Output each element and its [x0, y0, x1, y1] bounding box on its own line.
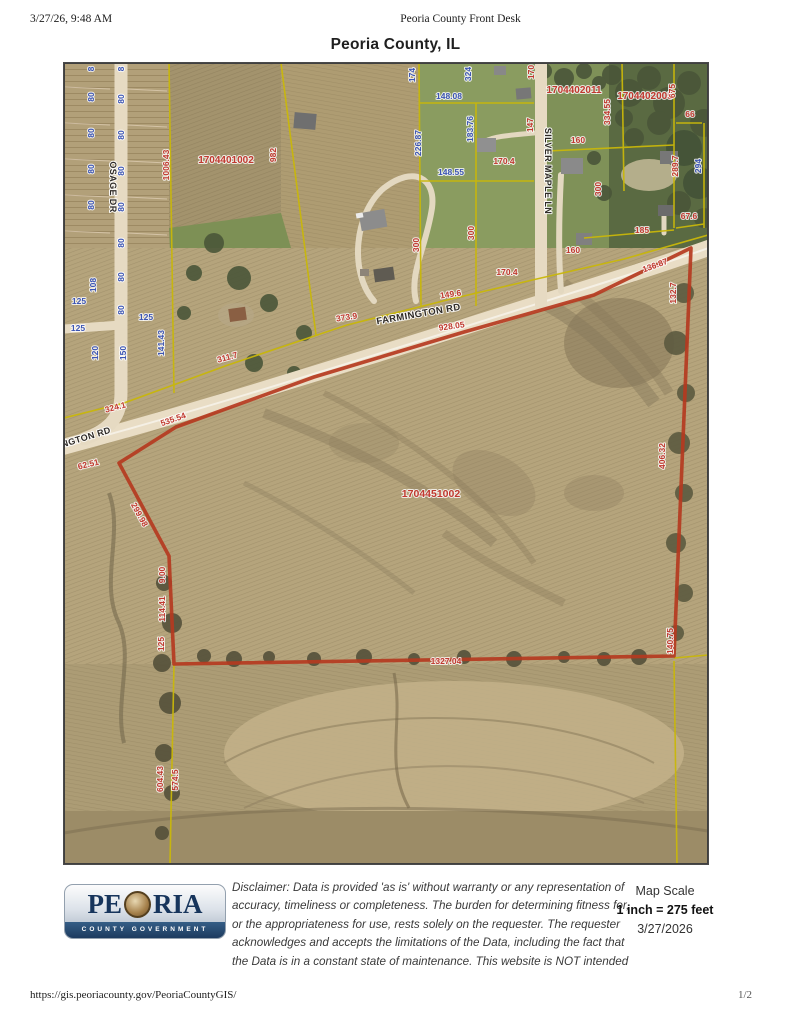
- map-label: 80: [86, 92, 96, 102]
- logo-subtitle: COUNTY GOVERNMENT: [65, 922, 225, 938]
- disclaimer-line: Disclaimer: Data is provided 'as is' wit…: [232, 879, 612, 897]
- logo-text-right: RIA: [153, 889, 203, 920]
- map-label: 140.75: [665, 628, 675, 654]
- map-label: 1704402005: [617, 91, 673, 102]
- map-label: 300: [593, 182, 603, 196]
- county-seal-icon: [124, 891, 151, 918]
- map-scale-value: 1 inch = 275 feet: [600, 903, 730, 917]
- disclaimer-text: Disclaimer: Data is provided 'as is' wit…: [232, 879, 612, 971]
- logo-text-left: PE: [87, 889, 122, 920]
- disclaimer-line: the Data is in a constant state of maint…: [232, 953, 612, 971]
- map-label: 675: [667, 84, 677, 98]
- map-label: 574.5: [170, 769, 180, 791]
- map-label: 148.08: [436, 91, 462, 101]
- disclaimer-line: acknowledges and accepts the limitations…: [232, 934, 612, 952]
- map-label: 80: [86, 128, 96, 138]
- map-label: 67.6: [681, 211, 698, 221]
- map-label: 125: [71, 323, 85, 333]
- map-label: 80: [116, 94, 126, 104]
- map-label: 1704451002: [402, 488, 461, 500]
- map-scale-block: Map Scale 1 inch = 275 feet 3/27/2026: [600, 884, 730, 936]
- map-label: SILVER MAPLE LN: [543, 128, 553, 214]
- map-label: 170.4: [493, 156, 515, 166]
- map-label: 334.55: [602, 99, 612, 125]
- map-label: 406.32: [657, 443, 667, 469]
- map-label: 289.7: [670, 155, 680, 177]
- disclaimer-line: or the appropriateness for use, rests so…: [232, 916, 612, 934]
- map-label: 125: [139, 312, 153, 322]
- map-label: 982: [268, 148, 278, 162]
- map-label: 150: [118, 346, 128, 360]
- map-label: 8: [86, 66, 96, 71]
- gis-map: 8880808080108120808080808080801501251251…: [63, 62, 709, 865]
- map-label: 8: [116, 66, 126, 71]
- source-url: https://gis.peoriacounty.gov/PeoriaCount…: [30, 989, 236, 1001]
- map-label: 80: [116, 272, 126, 282]
- map-label: 147: [525, 118, 535, 132]
- map-label: 80: [86, 164, 96, 174]
- printed-gis-page: 3/27/26, 9:48 AM Peoria County Front Des…: [0, 0, 791, 1024]
- map-label: 125: [72, 296, 86, 306]
- map-label: 114.41: [157, 596, 167, 622]
- map-label: 80: [116, 238, 126, 248]
- map-label: 125: [156, 637, 166, 651]
- map-label: 148.55: [438, 167, 464, 177]
- map-label: 80: [116, 130, 126, 140]
- map-label: 170: [526, 65, 536, 79]
- map-label: 80: [86, 200, 96, 210]
- print-doc-title: Peoria County Front Desk: [0, 13, 791, 25]
- map-label: 108: [88, 278, 98, 292]
- map-label: 183.76: [465, 116, 475, 142]
- disclaimer-line: accuracy, timeliness or completeness. Th…: [232, 897, 612, 915]
- aerial-map-image: 8880808080108120808080808080801501251251…: [64, 63, 708, 864]
- map-label: 604.43: [155, 766, 165, 792]
- map-label: 1704402011: [546, 85, 602, 96]
- map-label: OSAGE DR: [108, 161, 118, 212]
- page-number: 1/2: [738, 989, 752, 1001]
- map-label: 160: [566, 245, 580, 255]
- map-label: 66: [685, 109, 695, 119]
- map-label: 294: [693, 159, 703, 173]
- map-label: 300: [466, 226, 476, 240]
- map-label: 1327.04: [431, 656, 462, 666]
- peoria-county-logo: PE RIA COUNTY GOVERNMENT: [64, 884, 226, 939]
- map-scale-label: Map Scale: [600, 884, 730, 898]
- map-label: 174: [407, 68, 417, 82]
- map-label: 160: [571, 135, 585, 145]
- map-label: 1704401002: [198, 155, 254, 166]
- page-title: Peoria County, IL: [0, 36, 791, 54]
- map-label: 185: [635, 225, 649, 235]
- map-label: 120: [90, 346, 100, 360]
- map-label: 170.4: [496, 267, 518, 277]
- map-label: 80: [116, 305, 126, 315]
- map-label: 300: [411, 238, 421, 252]
- map-label: 226.87: [413, 130, 423, 156]
- map-label: 132.7: [668, 282, 678, 304]
- map-label: 1006.43: [161, 149, 171, 180]
- map-date: 3/27/2026: [600, 922, 730, 936]
- map-label: 9.00: [157, 566, 167, 583]
- map-label: 141.43: [156, 330, 166, 356]
- map-label: 324: [463, 67, 473, 81]
